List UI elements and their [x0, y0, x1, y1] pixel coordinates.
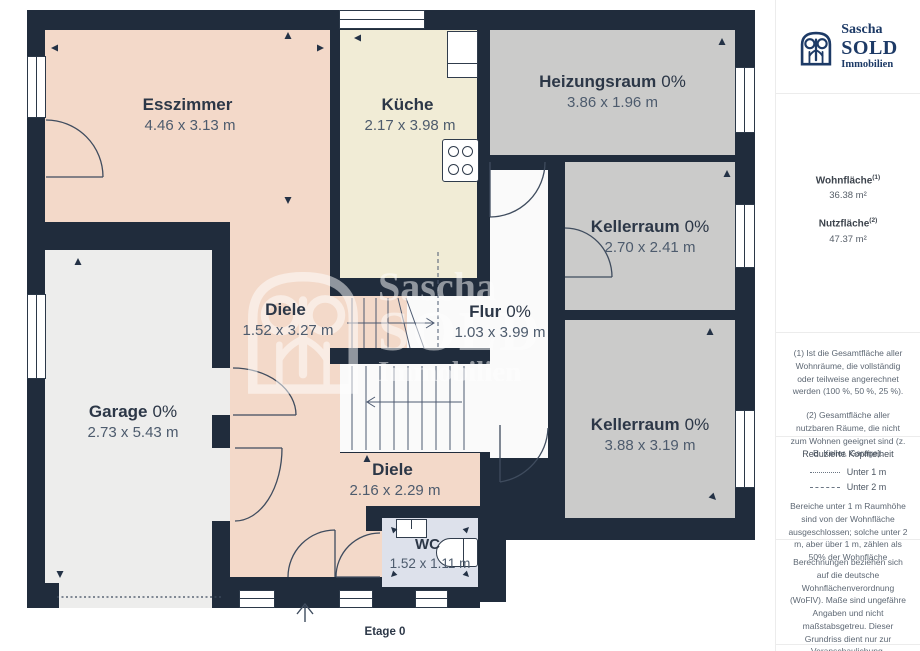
- stat-footnote-marker: (2): [869, 217, 877, 224]
- stove-icon: [442, 139, 479, 182]
- kitchen-sink-icon: [447, 31, 478, 78]
- garage-door-opening-lower: [212, 448, 230, 521]
- legend-label: Unter 2 m: [847, 482, 887, 492]
- footnote-1: (1) Ist die Gesamtfläche aller Wohnräume…: [788, 347, 908, 398]
- brand-header: Sascha SOLD Immobilien: [776, 0, 920, 94]
- stat-footnote-marker: (1): [872, 174, 880, 181]
- stat-nutzflaeche: Nutzfläche(2) 47.37 m²: [776, 217, 920, 244]
- stat-value: 47.37 m²: [776, 234, 920, 245]
- info-sidebar: Sascha SOLD Immobilien Wohnfläche(1) 36.…: [775, 0, 920, 651]
- stat-wohnflaeche: Wohnfläche(1) 36.38 m²: [776, 174, 920, 201]
- room-garage: [45, 250, 212, 608]
- stat-label: Nutzfläche: [819, 219, 870, 230]
- window: [735, 204, 755, 268]
- wc-sink-icon: [396, 519, 427, 538]
- stairs-lower-flight: [340, 364, 490, 452]
- legend-under-1m: Unter 1 m: [786, 467, 910, 477]
- disclaimer-section: Berechnungen beziehen sich auf die deuts…: [776, 540, 920, 645]
- dashed-line-icon: [810, 487, 840, 488]
- room-esszimmer: [45, 30, 330, 222]
- headroom-title: Reduzierte Kopffreiheit: [786, 449, 910, 459]
- window: [239, 590, 275, 608]
- wall-post: [45, 583, 59, 608]
- stat-value: 36.38 m²: [776, 190, 920, 201]
- window: [27, 56, 46, 118]
- brand-line3: Immobilien: [841, 60, 897, 71]
- garage-door-opening-upper: [212, 368, 230, 415]
- dotted-line-icon: [810, 472, 840, 473]
- headroom-legend-section: Reduzierte Kopffreiheit Unter 1 m Unter …: [776, 437, 920, 540]
- room-flur: [490, 170, 548, 458]
- stairs-upper-flight: [330, 296, 407, 348]
- brand-line1: Sascha: [841, 23, 897, 37]
- window: [339, 10, 425, 29]
- room-heizungsraum: [490, 30, 735, 155]
- legend-under-2m: Unter 2 m: [786, 482, 910, 492]
- window: [415, 590, 448, 608]
- window: [339, 590, 373, 608]
- footnotes-section: (1) Ist die Gesamtfläche aller Wohnräume…: [776, 333, 920, 437]
- window: [27, 294, 46, 379]
- stair-divider-wall: [330, 348, 480, 364]
- brand-line2: SOLD: [841, 38, 897, 58]
- window: [735, 67, 755, 133]
- stair-landing: [407, 296, 490, 348]
- toilet-icon: [436, 538, 478, 567]
- brand-wordmark: Sascha SOLD Immobilien: [841, 23, 897, 71]
- legend-label: Unter 1 m: [847, 467, 887, 477]
- wc-door-opening: [366, 531, 382, 577]
- floorplan-canvas: Sascha SOLD Immobilien Esszimmer 4.46 x …: [0, 0, 775, 651]
- window: [735, 410, 755, 488]
- stat-label: Wohnfläche: [816, 175, 872, 186]
- room-diele-1: [230, 222, 340, 453]
- wall-stub: [330, 222, 340, 296]
- room-kellerraum-2: [565, 320, 735, 518]
- floor-label: Etage 0: [330, 626, 440, 638]
- brand-arch-tree-icon: [798, 27, 834, 67]
- area-stats: Wohnfläche(1) 36.38 m² Nutzfläche(2) 47.…: [776, 94, 920, 333]
- floorplan-page: Sascha SOLD Immobilien Esszimmer 4.46 x …: [0, 0, 920, 651]
- room-kellerraum-1: [565, 162, 735, 310]
- disclaimer-text: Berechnungen beziehen sich auf die deuts…: [787, 556, 909, 651]
